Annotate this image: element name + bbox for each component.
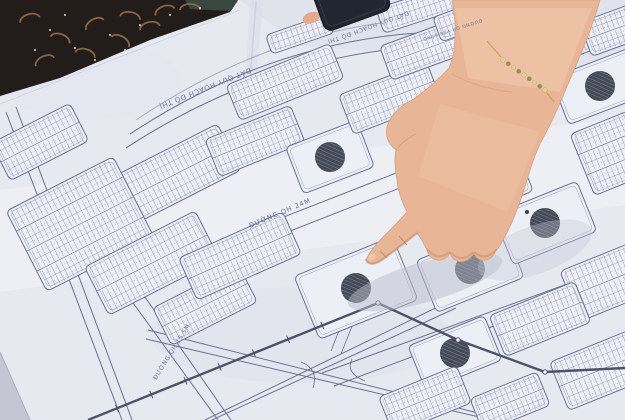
bracelet-bead [543,88,548,93]
bracelet-bead [511,65,516,70]
bracelet-bead [537,84,542,89]
photo-scene: ĐẤT QUY HOẠCH ĐÔ THỊ ĐẤT QUY HOẠCH ĐÔ TH… [0,0,625,420]
bracelet-bead [501,58,506,63]
bracelet-bead [522,73,527,78]
bracelet-bead [527,76,532,81]
planning-map-photo [0,0,625,420]
bracelet-bead [516,69,521,74]
bracelet-bead [506,61,511,66]
bracelet-bead [532,80,537,85]
